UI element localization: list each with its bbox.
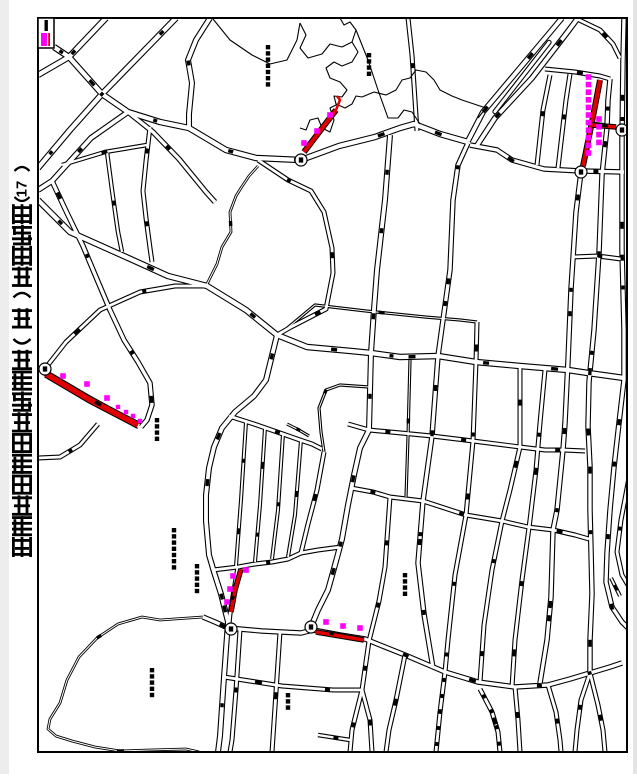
svg-text:17: 17: [14, 181, 31, 198]
